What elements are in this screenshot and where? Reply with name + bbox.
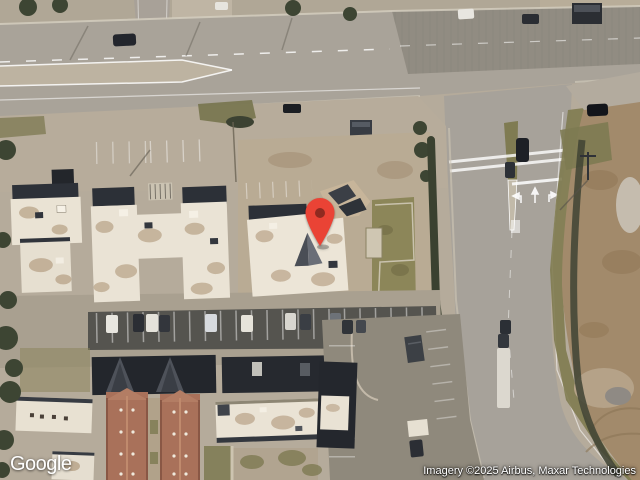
parapet xyxy=(92,187,135,206)
southeast-parking xyxy=(316,314,484,480)
brick-apartment xyxy=(160,390,200,480)
rooftop-unit xyxy=(269,223,277,229)
white-roof xyxy=(11,197,83,245)
rooftop-unit xyxy=(119,209,128,216)
truck-trailer xyxy=(497,348,510,408)
truck-cab xyxy=(498,334,509,348)
dumpster xyxy=(404,335,424,363)
parked-car xyxy=(356,320,366,333)
car xyxy=(113,33,137,46)
parked-car xyxy=(409,439,424,457)
rooftop-unit xyxy=(189,211,198,218)
pad xyxy=(366,228,382,258)
car xyxy=(283,104,301,113)
grass-patch xyxy=(204,446,232,480)
rooftop-unit xyxy=(57,205,66,212)
dark-roof-building xyxy=(316,361,357,448)
hedge xyxy=(226,116,254,128)
brick-apartment xyxy=(106,388,148,480)
rooftop-unit xyxy=(210,238,218,244)
car xyxy=(505,162,515,178)
carports xyxy=(92,355,355,395)
apartment-roof-white-long xyxy=(215,398,322,443)
pin-shadow xyxy=(317,245,329,250)
car xyxy=(522,14,539,24)
rooftop-unit xyxy=(35,212,43,218)
google-logo[interactable]: Google xyxy=(10,453,72,476)
satellite-imagery xyxy=(0,0,640,480)
pin-dot xyxy=(315,208,325,218)
courtyard xyxy=(148,398,160,480)
tree xyxy=(413,121,427,135)
white-roof xyxy=(247,210,349,296)
rooftop-unit xyxy=(144,222,152,228)
rooftop-unit xyxy=(56,257,64,263)
car xyxy=(587,103,609,116)
car xyxy=(215,2,228,10)
satellite-map-canvas[interactable]: Google Imagery ©2025 Airbus, Maxar Techn… xyxy=(0,0,640,480)
rooftop-unit xyxy=(328,261,337,268)
car xyxy=(500,320,511,334)
shed xyxy=(407,419,429,437)
imagery-attribution: Imagery ©2025 Airbus, Maxar Technologies xyxy=(423,465,636,477)
parked-car xyxy=(342,320,353,334)
car xyxy=(458,8,475,19)
suv xyxy=(516,138,529,162)
apartment-roof-white xyxy=(15,397,92,434)
